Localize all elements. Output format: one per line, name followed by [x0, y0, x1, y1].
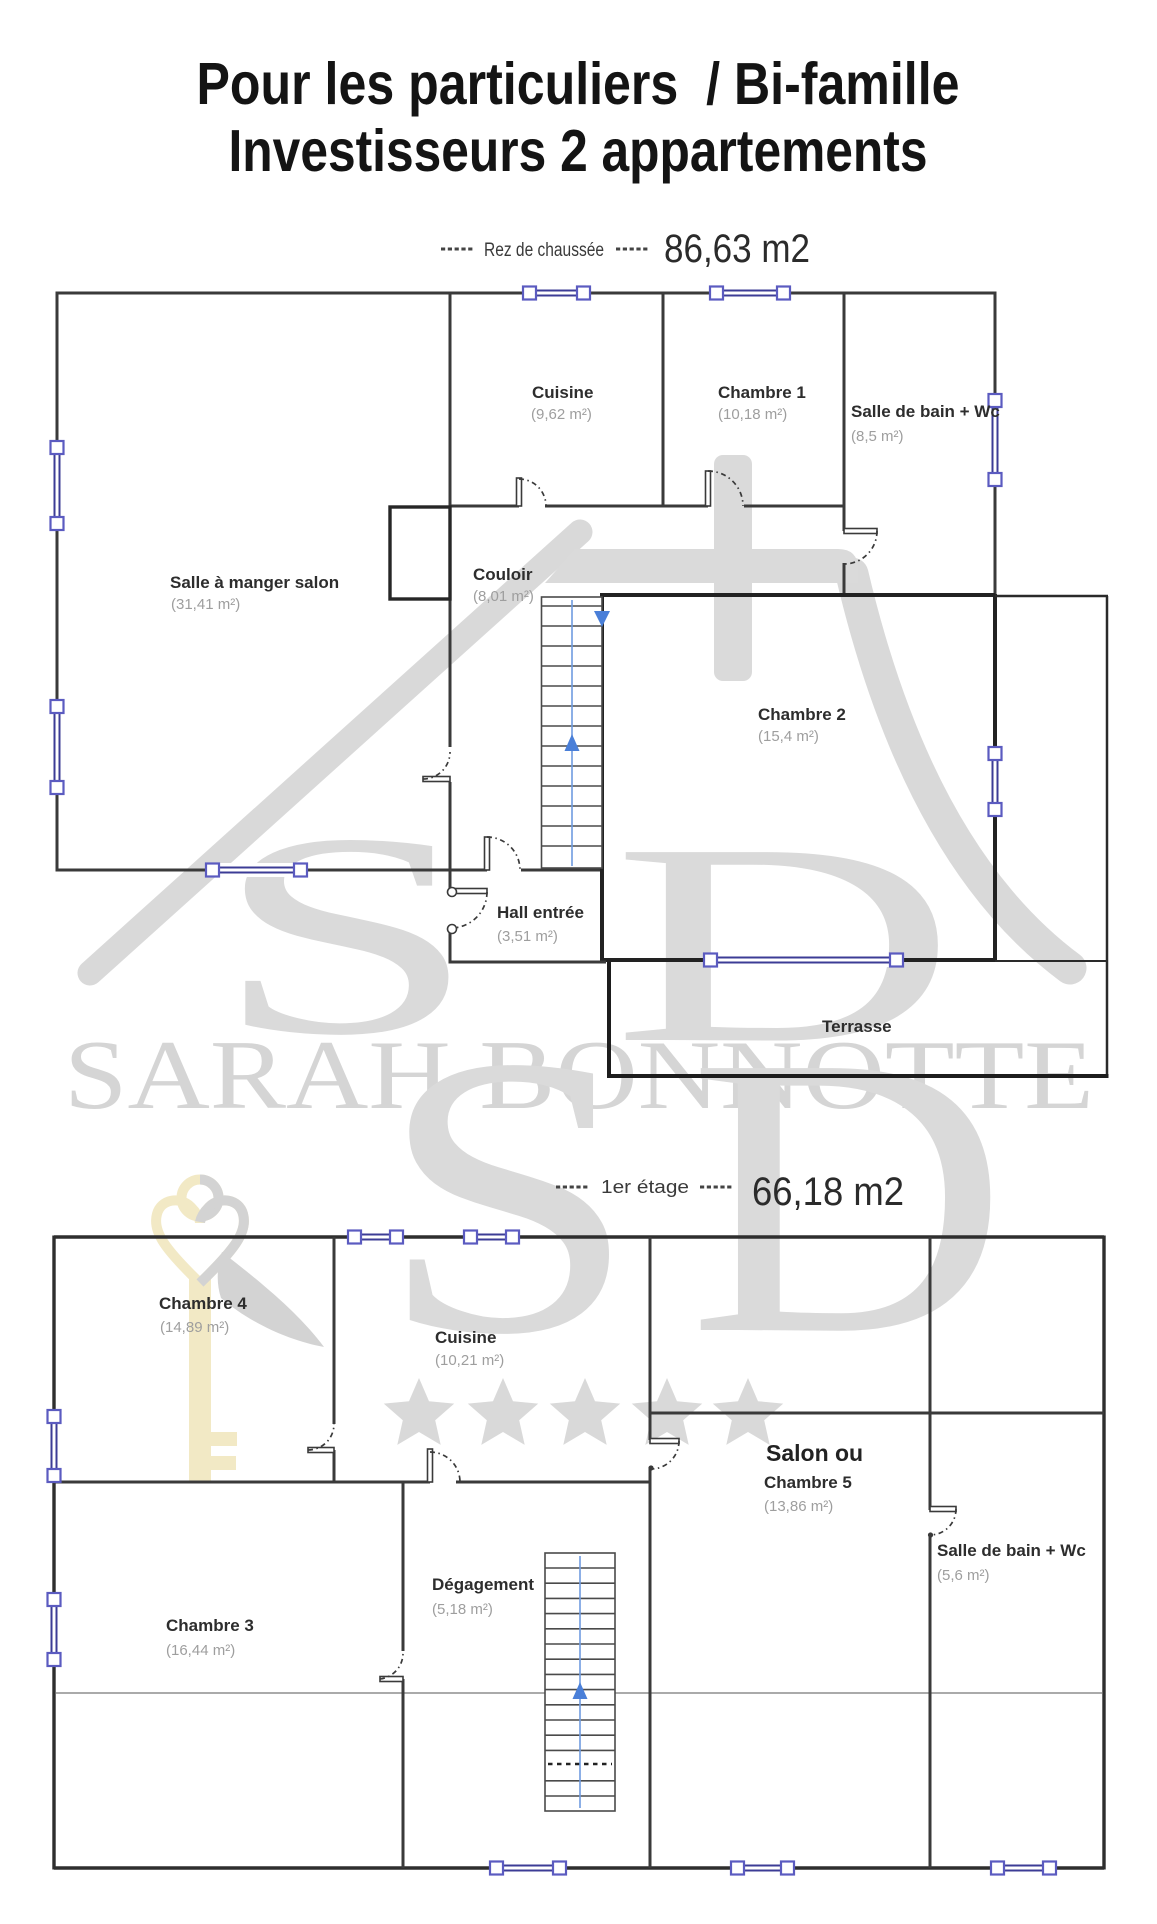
svg-text:Salle de bain + Wc: Salle de bain + Wc	[937, 1541, 1086, 1560]
svg-text:Hall entrée: Hall entrée	[497, 903, 584, 922]
svg-text:(13,86 m²): (13,86 m²)	[764, 1498, 833, 1515]
svg-text:(9,62 m²): (9,62 m²)	[531, 406, 592, 423]
svg-text:86,63 m2: 86,63 m2	[664, 227, 810, 271]
svg-text:(3,51 m²): (3,51 m²)	[497, 928, 558, 945]
svg-text:Chambre 5: Chambre 5	[764, 1473, 852, 1492]
svg-text:(14,89 m²): (14,89 m²)	[160, 1319, 229, 1336]
svg-text:Couloir: Couloir	[473, 565, 533, 584]
svg-text:S: S	[378, 974, 638, 1417]
svg-text:(10,21 m²): (10,21 m²)	[435, 1352, 504, 1369]
svg-text:(31,41 m²): (31,41 m²)	[171, 596, 240, 613]
svg-text:Rez de chaussée: Rez de chaussée	[484, 240, 604, 261]
svg-text:Salon ou: Salon ou	[766, 1440, 863, 1466]
svg-text:(16,44 m²): (16,44 m²)	[166, 1642, 235, 1659]
svg-text:Cuisine: Cuisine	[435, 1328, 496, 1347]
svg-text:(5,6 m²): (5,6 m²)	[937, 1567, 990, 1584]
svg-text:Dégagement: Dégagement	[432, 1575, 534, 1594]
svg-text:Investisseurs 2 appartements: Investisseurs 2 appartements	[229, 118, 928, 184]
svg-text:Chambre 3: Chambre 3	[166, 1616, 254, 1635]
svg-text:Salle à manger salon: Salle à manger salon	[170, 573, 339, 592]
svg-text:Chambre 4: Chambre 4	[159, 1294, 247, 1313]
svg-text:66,18 m2: 66,18 m2	[752, 1170, 904, 1214]
svg-text:(10,18 m²): (10,18 m²)	[718, 406, 787, 423]
svg-text:Chambre 2: Chambre 2	[758, 705, 846, 724]
svg-text:Pour les particuliers / Bi-fa: Pour les particuliers / Bi-famille	[197, 51, 960, 117]
svg-text:Chambre 1: Chambre 1	[718, 383, 806, 402]
svg-text:Terrasse: Terrasse	[822, 1017, 892, 1036]
svg-text:(8,5 m²): (8,5 m²)	[851, 428, 904, 445]
svg-text:1er étage: 1er étage	[601, 1177, 689, 1197]
svg-text:Salle de bain + Wc: Salle de bain + Wc	[851, 402, 1000, 421]
svg-text:(15,4 m²): (15,4 m²)	[758, 728, 819, 745]
svg-text:(8,01 m²): (8,01 m²)	[473, 588, 534, 605]
svg-text:(5,18 m²): (5,18 m²)	[432, 1601, 493, 1618]
svg-text:Cuisine: Cuisine	[532, 383, 593, 402]
